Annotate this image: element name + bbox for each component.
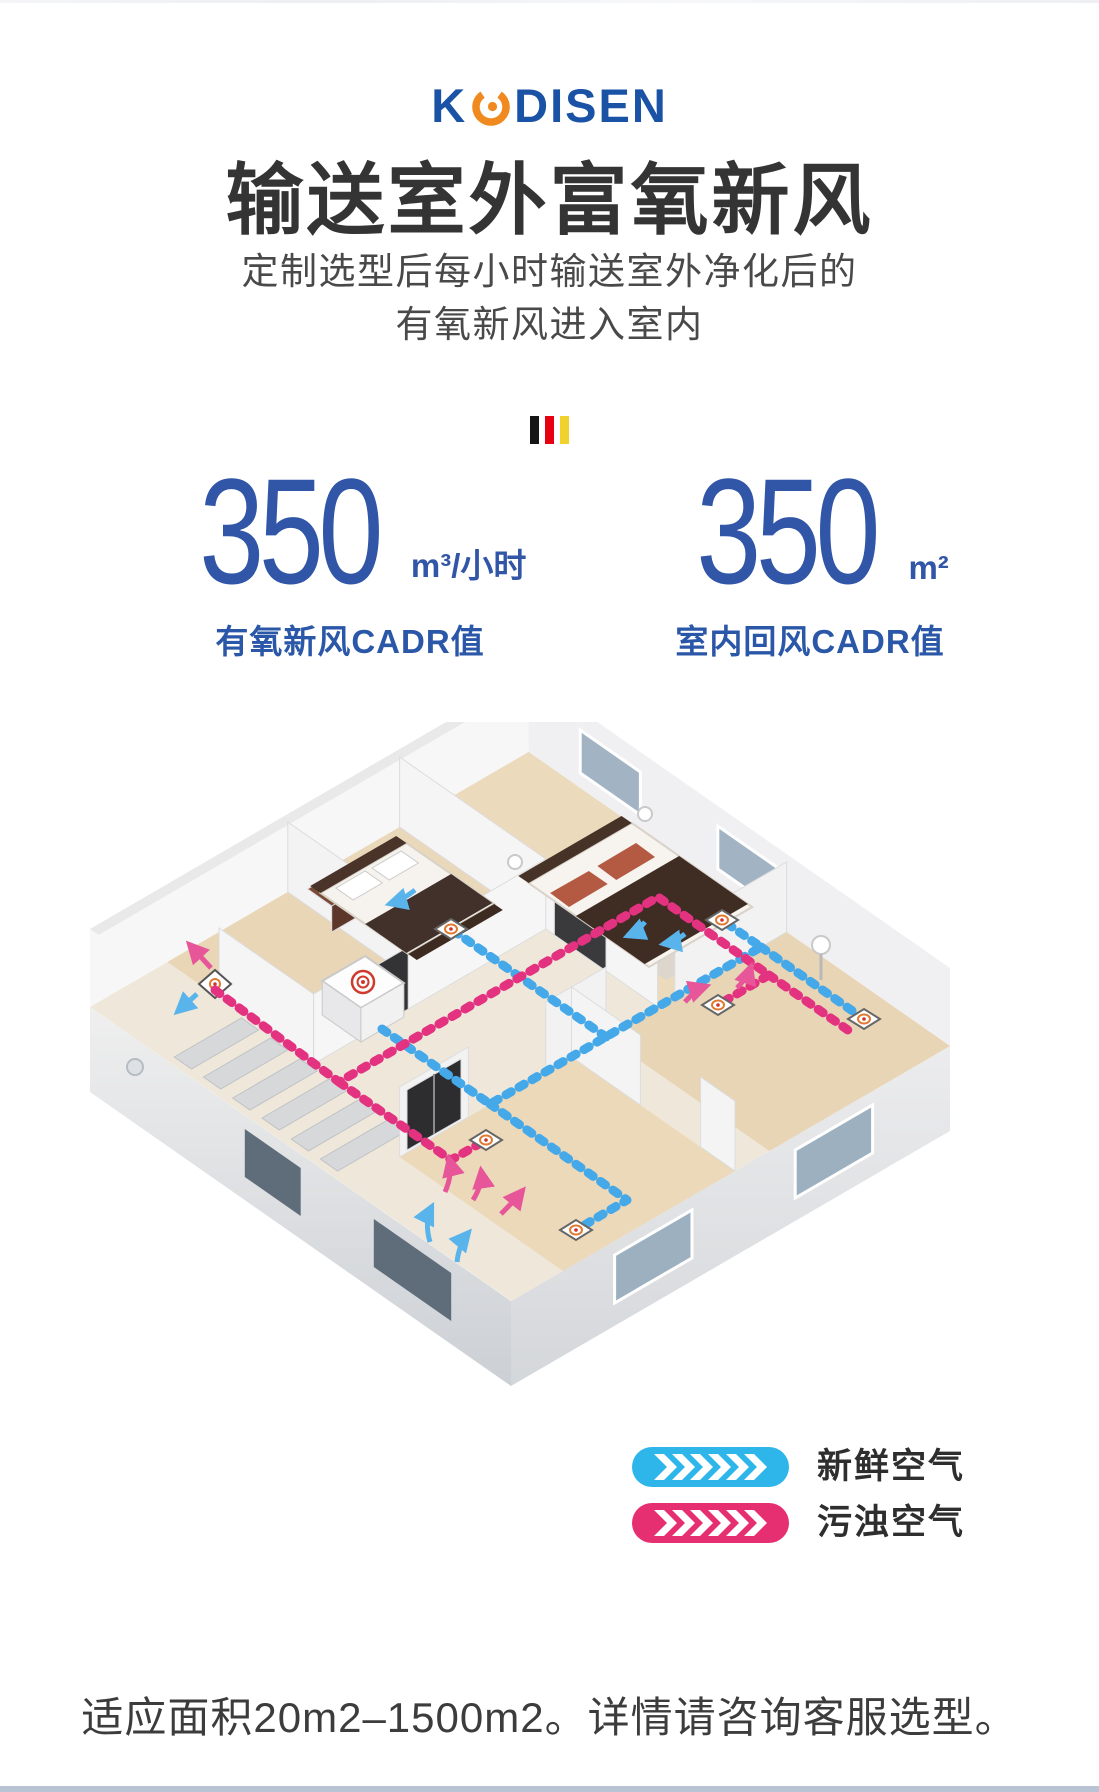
legend-label-fresh: 新鲜空气 [817, 1447, 965, 1487]
page-subtitle: 定制选型后每小时输送室外净化后的 有氧新风进入室内 [0, 246, 1099, 351]
logo-o-swirl-icon [469, 84, 513, 128]
product-detail-poster: K DISEN 输送室外富氧新风 定制选型后每小时输送室外净化后的 有氧新风进入… [0, 0, 1099, 1792]
bottom-divider [0, 1786, 1099, 1792]
logo-text-left: K [431, 82, 467, 129]
stat-return-air-cadr: 350 m² 室内回风CADR值 [610, 458, 1010, 663]
polluted-air-chevron-icon [632, 1503, 789, 1543]
stat-label: 室内回风CADR值 [610, 615, 1010, 663]
stat-unit: m² [900, 549, 948, 593]
stat-unit: m³/小时 [403, 539, 527, 593]
page-title: 输送室外富氧新风 [0, 138, 1099, 250]
subtitle-line-1: 定制选型后每小时输送室外净化后的 [0, 246, 1099, 299]
coverage-note: 适应面积20m2–1500m2。详情请咨询客服选型。 [0, 1684, 1099, 1745]
bedside-lamp [638, 807, 652, 821]
house-airflow-diagram [85, 722, 955, 1462]
stat-value: 350 [696, 470, 875, 593]
floor-lamp [812, 936, 830, 954]
brand-logo: K DISEN [0, 82, 1099, 129]
bedside-lamp [508, 855, 522, 869]
stat-fresh-air-cadr: 350 m³/小时 有氧新风CADR值 [150, 458, 550, 663]
german-flag-divider-icon [0, 416, 1099, 444]
top-edge-artifact [0, 0, 1099, 3]
legend-row-polluted: 污浊空气 [632, 1503, 965, 1543]
legend-row-fresh: 新鲜空气 [632, 1447, 965, 1487]
subtitle-line-2: 有氧新风进入室内 [0, 299, 1099, 352]
logo-text-right: DISEN [514, 82, 668, 129]
intake-vent-hole [127, 1059, 143, 1075]
floors [90, 752, 950, 1301]
airflow-legend: 新鲜空气 污浊空气 [632, 1447, 965, 1559]
fresh-air-chevron-icon [632, 1447, 789, 1487]
legend-label-polluted: 污浊空气 [817, 1503, 965, 1543]
stat-label: 有氧新风CADR值 [150, 615, 550, 663]
stat-value: 350 [199, 470, 378, 593]
